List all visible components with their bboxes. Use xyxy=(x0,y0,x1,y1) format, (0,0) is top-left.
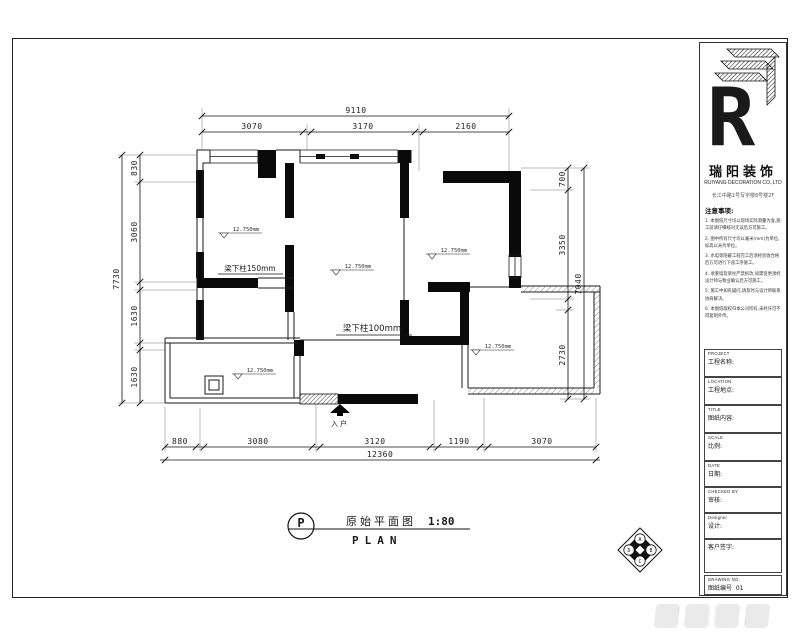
beam-label-150: 梁下柱150mm xyxy=(224,263,275,273)
dim-left-3: 1630 xyxy=(130,305,139,326)
windows xyxy=(210,150,521,278)
walls-thin xyxy=(165,150,600,403)
floor-plan-drawing: 9110 3070 3170 2160 880 3080 3120 1190 3… xyxy=(0,0,695,640)
dim-top-1: 3070 xyxy=(241,122,262,131)
elevation-label: 12.750mm xyxy=(247,368,274,374)
elevation-label: 12.750mm xyxy=(485,344,512,350)
dim-right-1: 700 xyxy=(558,171,567,187)
notes-heading: 注意事项: xyxy=(705,205,781,215)
dim-bottom-4: 1190 xyxy=(448,437,469,446)
dim-top-2: 3170 xyxy=(352,122,373,131)
entry-arrow-icon xyxy=(330,404,350,413)
dim-left-2: 3060 xyxy=(130,221,139,242)
dim-bottom-overall: 12360 xyxy=(367,450,394,459)
index-c: C xyxy=(638,559,641,565)
svg-text:R: R xyxy=(707,71,756,157)
dim-bottom-5: 3070 xyxy=(531,437,552,446)
plan-title-en: PLAN xyxy=(352,534,403,547)
elevation-label: 12.750mm xyxy=(345,264,372,270)
elevation-label: 12.750mm xyxy=(233,227,260,233)
company-address: 长江中路1号写字楼8号楼2F xyxy=(700,192,786,199)
field-location: LOCATION 工程地点: xyxy=(704,377,782,405)
title-block: R 瑞阳装饰 RUIYANG DECORATION CO.,LTD 长江中路1号… xyxy=(699,42,787,596)
drawing-title: P 原始平面图 1:80 PLAN xyxy=(288,513,470,547)
dim-right-overall: 7040 xyxy=(574,273,583,294)
dim-left-1: 830 xyxy=(130,160,139,176)
note-item: 6. 本图纸版权归本公司所有,未经许可不得复制外传。 xyxy=(705,306,781,321)
plan-title-cn: 原始平面图 xyxy=(346,514,416,528)
notes-section: 注意事项: 1. 本图纸尺寸均以现场实际测量为准,施工前请仔细核对无误后方可施工… xyxy=(705,205,781,345)
index-d: D xyxy=(627,548,630,554)
note-item: 5. 施工中如有疑问,请及时与设计师联系协商解决。 xyxy=(705,288,781,303)
note-item: 3. 水电等隐蔽工程完工后须经验收合格后方可进行下道工序施工。 xyxy=(705,253,781,268)
note-item: 1. 本图纸尺寸均以现场实际测量为准,施工前请仔细核对无误后方可施工。 xyxy=(705,218,781,233)
index-a: A xyxy=(638,537,641,543)
note-item: 4. 承重墙及梁柱严禁拆改,如需变更须经设计师与物业确认后方可施工。 xyxy=(705,271,781,286)
entry-marker: 入户 xyxy=(330,404,350,428)
field-checked-by: CHECKED BY 审核: xyxy=(704,487,782,513)
walls-solid xyxy=(196,150,521,404)
field-client-signature: 客户签字: xyxy=(704,539,782,573)
dim-right-2: 3350 xyxy=(558,234,567,255)
company-name-en: RUIYANG DECORATION CO.,LTD xyxy=(700,180,786,186)
field-title: TITLE 图纸内容: xyxy=(704,405,782,433)
dim-left-4: 1630 xyxy=(130,366,139,387)
elevation-label: 12.750mm xyxy=(441,248,468,254)
company-logo: R xyxy=(700,45,786,157)
field-designer: Designer 设计: xyxy=(704,513,782,539)
beam-annotations: 梁下柱150mm 梁下柱100mm xyxy=(218,263,412,335)
drawing-no-cn: 图纸编号 xyxy=(708,585,732,592)
entry-label: 入户 xyxy=(331,419,349,428)
dim-bottom-1: 880 xyxy=(172,437,188,446)
field-scale: SCALE 比例: xyxy=(704,433,782,461)
field-date: DATE 日期: xyxy=(704,461,782,487)
index-b: B xyxy=(649,548,652,554)
dim-top-overall: 9110 xyxy=(345,106,366,115)
plan-scale: 1:80 xyxy=(428,515,455,528)
beam-label-100: 梁下柱100mm xyxy=(343,323,401,334)
drawing-no-en: DRAWING NO. xyxy=(708,577,778,582)
drawing-no-box: DRAWING NO. 图纸编号 01 xyxy=(704,575,782,595)
elevation-markers: 12.750mm 12.750mm 12.750mm 12.750mm 12.7… xyxy=(218,227,514,379)
page: { "brand": { "logo_letter": "R", "name_c… xyxy=(0,0,800,640)
logo-r-icon: R xyxy=(701,45,785,157)
dim-left-overall: 7730 xyxy=(112,268,121,289)
watermark xyxy=(652,600,792,634)
note-item: 2. 图中所有尺寸均以毫米(mm)为单位,标高以米为单位。 xyxy=(705,236,781,251)
title-bubble: P xyxy=(297,516,304,530)
dim-bottom-3: 3120 xyxy=(364,437,385,446)
dim-top-3: 2160 xyxy=(455,122,476,131)
drawing-no-value: 01 xyxy=(736,585,744,592)
dim-right-3: 2730 xyxy=(558,344,567,365)
field-project: PROJECT 工程名称: xyxy=(704,349,782,377)
company-name-cn: 瑞阳装饰 xyxy=(700,161,786,180)
dim-bottom-2: 3080 xyxy=(247,437,268,446)
index-symbol: A B C D xyxy=(618,528,662,572)
